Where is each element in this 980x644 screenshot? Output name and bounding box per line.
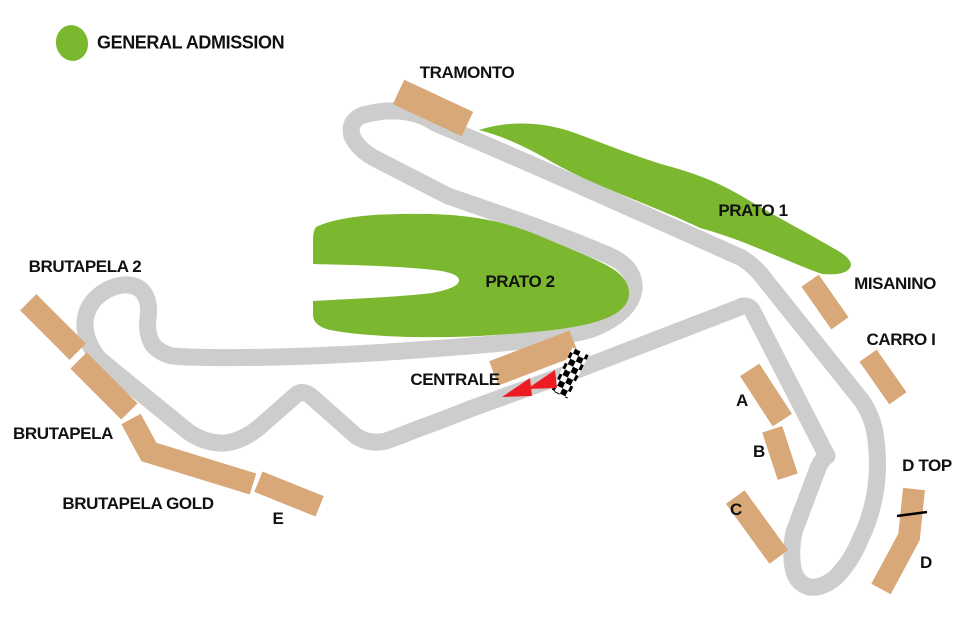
b-label: B [753,442,765,462]
c-label: C [730,500,742,520]
tramonto-label: TRAMONTO [420,63,515,83]
a-label: A [736,391,748,411]
d-label: D [920,553,932,573]
d-top-d-grandstand[interactable] [881,489,914,589]
b-grandstand[interactable] [762,426,797,480]
carro-label: CARRO I [867,330,936,350]
brutapela-gold-label: BRUTAPELA GOLD [62,494,213,514]
general-admission-swatch [53,22,92,64]
prato-2-area[interactable] [313,214,629,337]
circuit-map: GENERAL ADMISSION TRAMONTO PRATO 1 PRATO… [0,0,980,644]
e-label: E [273,509,284,529]
general-admission-label: GENERAL ADMISSION [97,33,284,54]
centrale-label: CENTRALE [410,370,499,390]
misanino-label: MISANINO [854,274,936,294]
brutapela-label: BRUTAPELA [13,424,113,444]
brutapela-2-grandstand[interactable] [20,294,86,360]
e-grandstand[interactable] [254,471,323,516]
prato-1-label: PRATO 1 [718,201,787,221]
brutapela-2-label: BRUTAPELA 2 [29,257,142,277]
d-top-label: D TOP [902,456,952,476]
prato-2-label: PRATO 2 [485,272,554,292]
circuit-map-canvas [0,0,980,644]
